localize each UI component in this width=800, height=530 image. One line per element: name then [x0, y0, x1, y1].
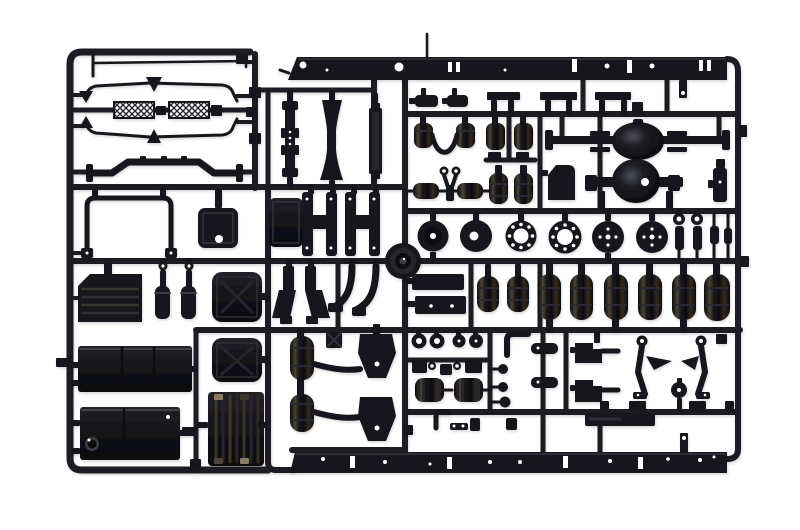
sprue-illustration: [0, 0, 800, 530]
axle-stub-1: [531, 343, 558, 354]
cube-block: [632, 102, 643, 113]
side-panel: [269, 198, 303, 247]
hatch-panel-2: [212, 338, 268, 382]
axle-stub-2: [531, 377, 558, 388]
model-kit-sprue-photo: [0, 0, 800, 530]
clamp-square: [326, 332, 342, 348]
cone-hub: [385, 243, 421, 279]
mounting-plate-1: [405, 274, 464, 290]
mesh-screen-bar: [114, 102, 222, 118]
hatch-panel-1: [212, 272, 268, 322]
large-tank-2: [70, 407, 196, 460]
large-tank-1: [70, 346, 196, 392]
